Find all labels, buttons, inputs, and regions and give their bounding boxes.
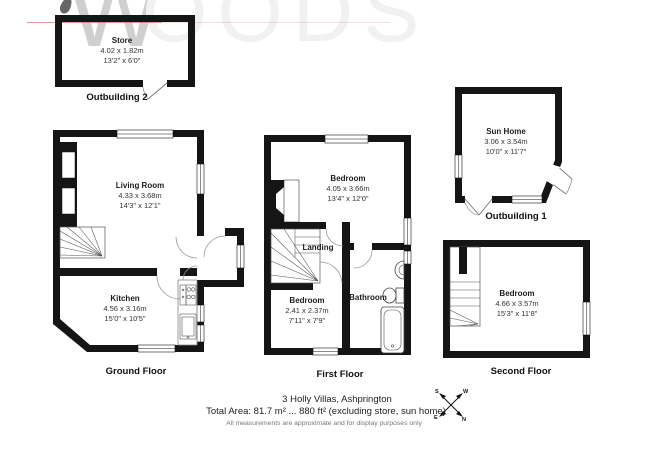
sun-home-label: Sun Home 3.06 x 3.54m 10'0" x 11'7" (484, 127, 527, 157)
compass-icon: S W E N (434, 386, 468, 422)
property-address: 3 Holly Villas, Ashprington (282, 394, 392, 405)
bathroom-label: Bathroom (349, 293, 387, 303)
kitchen-label: Kitchen 4.56 x 3.16m 15'0" x 10'5" (103, 294, 146, 324)
living-room-label: Living Room 4.33 x 3.68m 14'3" x 12'1" (116, 181, 164, 211)
ground-floor-plan (45, 128, 250, 363)
stairs-icon (271, 229, 320, 283)
ground-floor-caption: Ground Floor (106, 366, 167, 377)
landing-label: Landing (302, 243, 333, 253)
second-floor-windows (583, 302, 590, 335)
bedroom1-wall (271, 222, 326, 229)
front-door-gap (204, 228, 225, 236)
total-area-text: Total Area: 81.7 m² ... 880 ft² (excludi… (206, 406, 446, 417)
outbuilding1-caption: Outbuilding 1 (485, 211, 546, 222)
bathtub-icon (381, 307, 404, 353)
compass-s: S (435, 389, 439, 395)
bathroom-door-gap (354, 243, 372, 250)
second-floor-bedroom-label: Bedroom 4.66 x 3.57m 15'3" x 11'8" (495, 289, 538, 319)
disclaimer-text: All measurements are approximate and for… (226, 420, 422, 427)
first-floor-bedroom1-label: Bedroom 4.05 x 3.66m 13'4" x 12'0" (326, 174, 369, 204)
first-floor-bedroom2-label: Bedroom 2.41 x 2.37m 7'11" x 7'9" (285, 296, 328, 326)
floorplan-page: W OODS Store 4.02 x 1.82m 13'2" x 6'0" O… (0, 0, 650, 450)
fireplace-icon (271, 180, 299, 222)
landing-wall-stub (342, 222, 350, 250)
first-floor-caption: First Floor (317, 369, 364, 380)
outbuilding2-caption: Outbuilding 2 (86, 92, 147, 103)
chimney-breast (60, 142, 77, 227)
second-floor-caption: Second Floor (491, 366, 552, 377)
stairs-icon (60, 227, 105, 258)
compass-w: W (463, 389, 468, 395)
bedroom2-wall (271, 283, 313, 290)
compass-n: N (462, 417, 466, 422)
outbuilding1-door-gap (465, 196, 492, 203)
kitchen-counter (178, 280, 197, 345)
livingroom-door-gap (197, 237, 204, 257)
porch-kitchen-door-gap (197, 266, 204, 280)
basin-icon (395, 261, 404, 279)
outbuilding1-windows (455, 155, 542, 203)
store-room-label: Store 4.02 x 1.82m 13'2" x 6'0" (100, 36, 143, 66)
compass-e: E (434, 415, 438, 421)
stairs-icon (450, 247, 480, 326)
first-floor-plan (258, 133, 418, 363)
living-kitchen-wall (60, 268, 157, 276)
